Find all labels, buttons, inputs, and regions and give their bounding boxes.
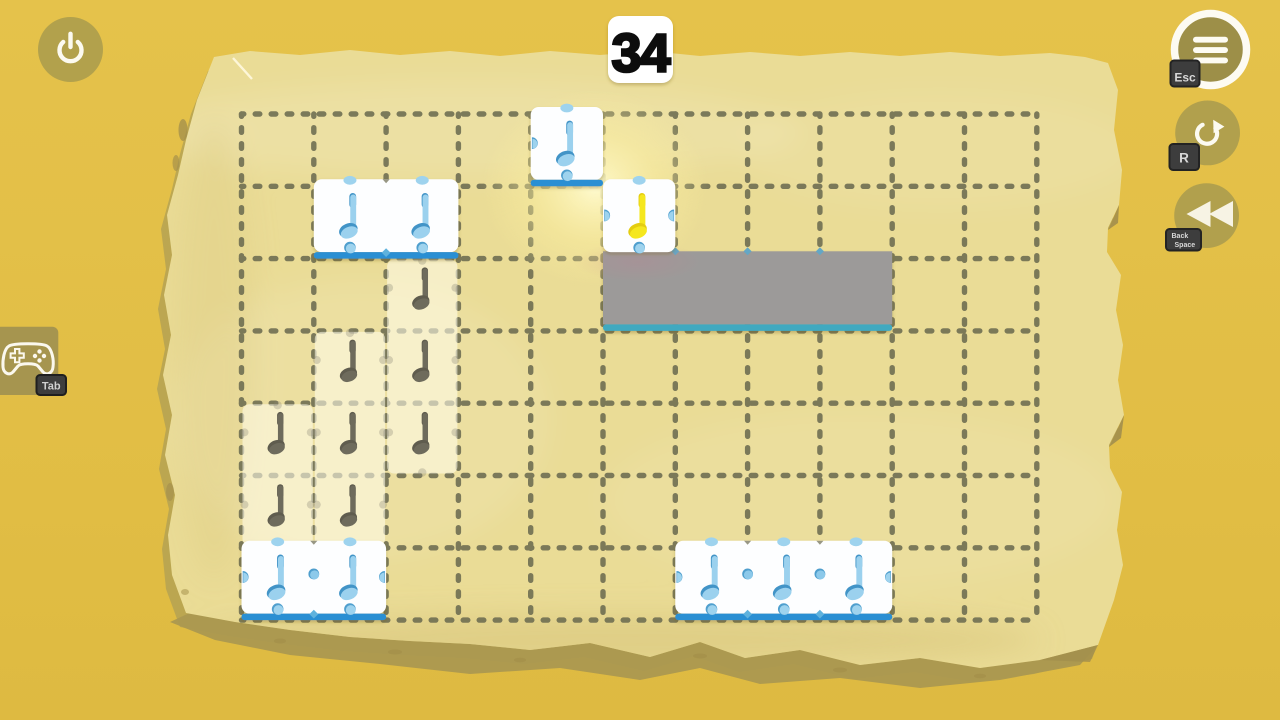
svg-text:R: R bbox=[1179, 151, 1189, 166]
svg-text:34: 34 bbox=[611, 24, 670, 84]
svg-text:Space: Space bbox=[1175, 242, 1196, 249]
svg-text:Back: Back bbox=[1172, 233, 1189, 240]
svg-text:Tab: Tab bbox=[42, 381, 61, 393]
svg-text:Esc: Esc bbox=[1174, 71, 1196, 85]
